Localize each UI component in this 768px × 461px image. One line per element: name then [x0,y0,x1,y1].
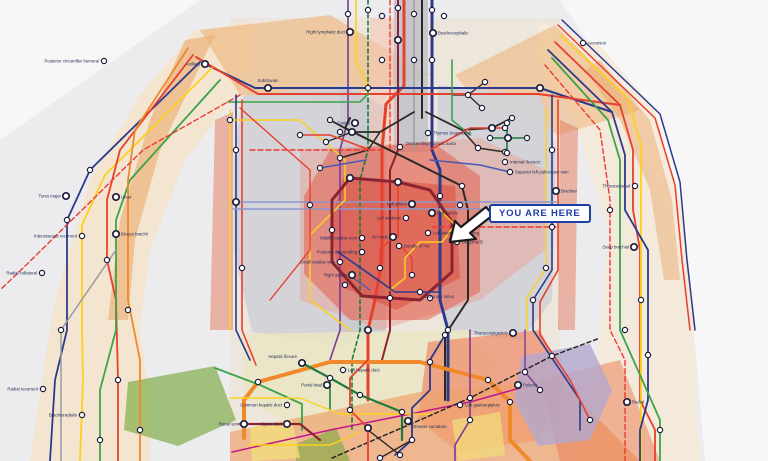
interchange-station [395,37,401,43]
station [323,139,328,144]
station-label: Brachiocephalic [438,31,469,36]
station [347,407,352,412]
station [64,217,69,222]
station [377,455,382,460]
station [125,307,130,312]
station [580,40,585,45]
interchange-station [347,29,353,35]
station [441,13,446,18]
region-left-flank-muscle [558,120,578,330]
station-label: Posterior circumflex humeral [45,59,99,64]
interchange-station [284,421,290,427]
station [429,7,434,12]
interchange-station [390,234,396,240]
station [482,79,487,84]
station [429,57,434,62]
station [507,169,512,174]
station [379,13,384,18]
station [587,417,592,422]
interchange-station [299,360,305,366]
interchange-station [63,193,69,199]
station [549,353,554,358]
station-label: Thoracoepigastric [474,331,509,336]
interchange-station [553,188,559,194]
station [396,243,401,248]
station-label: Renal vein [219,422,240,427]
station [357,392,362,397]
station-label: Brachioradialis [49,413,77,418]
station [502,125,507,130]
you-are-here-label: YOU ARE HERE [489,204,591,223]
station-label: Descending thoracic aorta [406,141,457,146]
station [233,147,238,152]
station [377,265,382,270]
interchange-station [505,135,511,141]
station [409,272,414,277]
interchange-station [409,201,415,207]
interchange-station [405,418,411,424]
interchange-station [349,129,355,135]
station [467,417,472,422]
station [337,155,342,160]
station [255,379,260,384]
station [417,289,422,294]
interchange-station [113,231,119,237]
station [387,295,392,300]
station [397,144,402,149]
station [638,297,643,302]
station [409,437,414,442]
station [427,359,432,364]
interchange-station [241,421,247,427]
interchange-station [365,327,371,333]
station-label: Small cardiac vein [300,260,335,265]
station-label: Right lymphatic duct [306,30,345,35]
interchange-station [515,382,521,388]
station [40,386,45,391]
station [437,193,442,198]
station [657,427,662,432]
station [632,183,637,188]
interchange-station [347,175,353,181]
interchange-station [395,179,401,185]
station [522,369,527,374]
station [467,395,472,400]
station-label: Interosseous recurrent [34,234,78,239]
station [58,327,63,332]
station [645,352,650,357]
station [337,259,342,264]
station [403,215,408,220]
station-label: Carina [337,121,350,126]
interchange-station [430,30,436,36]
station [395,5,400,10]
station-label: Left atrium [387,202,408,207]
you-are-here-callout: YOU ARE HERE [489,204,591,223]
station [87,167,92,172]
station-label: Acromion [588,41,607,46]
station [327,375,332,380]
station [397,452,402,457]
station-label: Ulnar [121,195,132,200]
map-canvas: Right lymphatic ductBrachiocephalicSubcl… [0,0,768,461]
station [365,7,370,12]
station [549,147,554,152]
station-label: Common hepatic duct [240,403,283,408]
station-label: Right atrium [324,273,348,278]
station-label: Radial [632,400,644,405]
station [79,233,84,238]
station [284,402,289,407]
interchange-station [349,272,355,278]
station [97,437,102,442]
station [317,165,322,170]
interchange-station [624,399,630,405]
station-label: Greater curvature [413,424,447,429]
station-label: Portal triad [301,383,322,388]
station [465,92,470,97]
station-label: Left hepatic duct [348,368,380,373]
station [475,145,480,150]
station [485,377,490,382]
station [425,230,430,235]
station [549,224,554,229]
station [297,132,302,137]
station [342,282,347,287]
interchange-station [537,85,543,91]
station [104,257,109,262]
interchange-station [631,244,637,250]
interchange-station [265,85,271,91]
interchange-station [489,125,495,131]
station-label: Radial collateral [6,271,37,276]
station [442,332,447,337]
station [479,105,484,110]
station [607,207,612,212]
station [411,11,416,16]
station [509,115,514,120]
station [101,58,106,63]
station [327,117,332,122]
station-label: Hepatic flexure [268,354,297,359]
station [329,227,334,232]
station [365,85,370,90]
station [524,135,529,140]
station-label: Coronary sinus [425,294,454,299]
station-label: Left gastroepiploic [465,403,501,408]
interchange-station [202,61,208,67]
station [137,427,142,432]
interchange-station [113,194,119,200]
station [507,399,512,404]
station-label: Brachial [561,189,577,194]
station-label: Posterior descending [317,250,358,255]
station [459,183,464,188]
station-label: Cystic duct [261,422,283,427]
station [622,327,627,332]
station-label: Radial recurrent [7,387,38,392]
station [487,135,492,140]
interchange-station [510,330,516,336]
station [340,367,345,372]
station [504,150,509,155]
station [345,11,350,16]
station [359,249,364,254]
interchange-station [324,382,330,388]
station [537,387,542,392]
station-label: Internal thoracic [510,160,541,165]
station-label: Left ventricle [377,216,402,221]
station [239,265,244,270]
interchange-station [352,120,358,126]
interchange-station [365,425,371,431]
station [502,159,507,164]
station [79,412,84,417]
station [39,270,44,275]
station [115,377,120,382]
station-label: Pylorus [523,383,537,388]
station [445,327,450,332]
station [399,409,404,414]
station-label: AV node [372,235,389,240]
station [543,265,548,270]
station-label: Bundle of His [404,244,430,249]
station-label: Biceps brachii [121,232,148,237]
station [337,129,342,134]
station-label: Superior left pulmonary vein [515,170,569,175]
station-label: Axillary [186,62,201,67]
station-label: Middle cardiac vein [320,236,357,241]
station-label: Teres major [39,194,62,199]
station [307,202,312,207]
station [359,235,364,240]
station [457,402,462,407]
station [425,130,430,135]
station [411,57,416,62]
station [227,117,232,122]
station-label: Thymus (regressed) [433,131,472,136]
station [530,297,535,302]
station-label: Thoracodorsal [603,184,631,189]
station [379,57,384,62]
station-label: Deep brachial [602,245,629,250]
interchange-station [233,199,239,205]
body-subway-map: Right lymphatic ductBrachiocephalicSubcl… [0,0,768,461]
interchange-station [429,210,435,216]
station-label: Subclavian [257,78,279,83]
